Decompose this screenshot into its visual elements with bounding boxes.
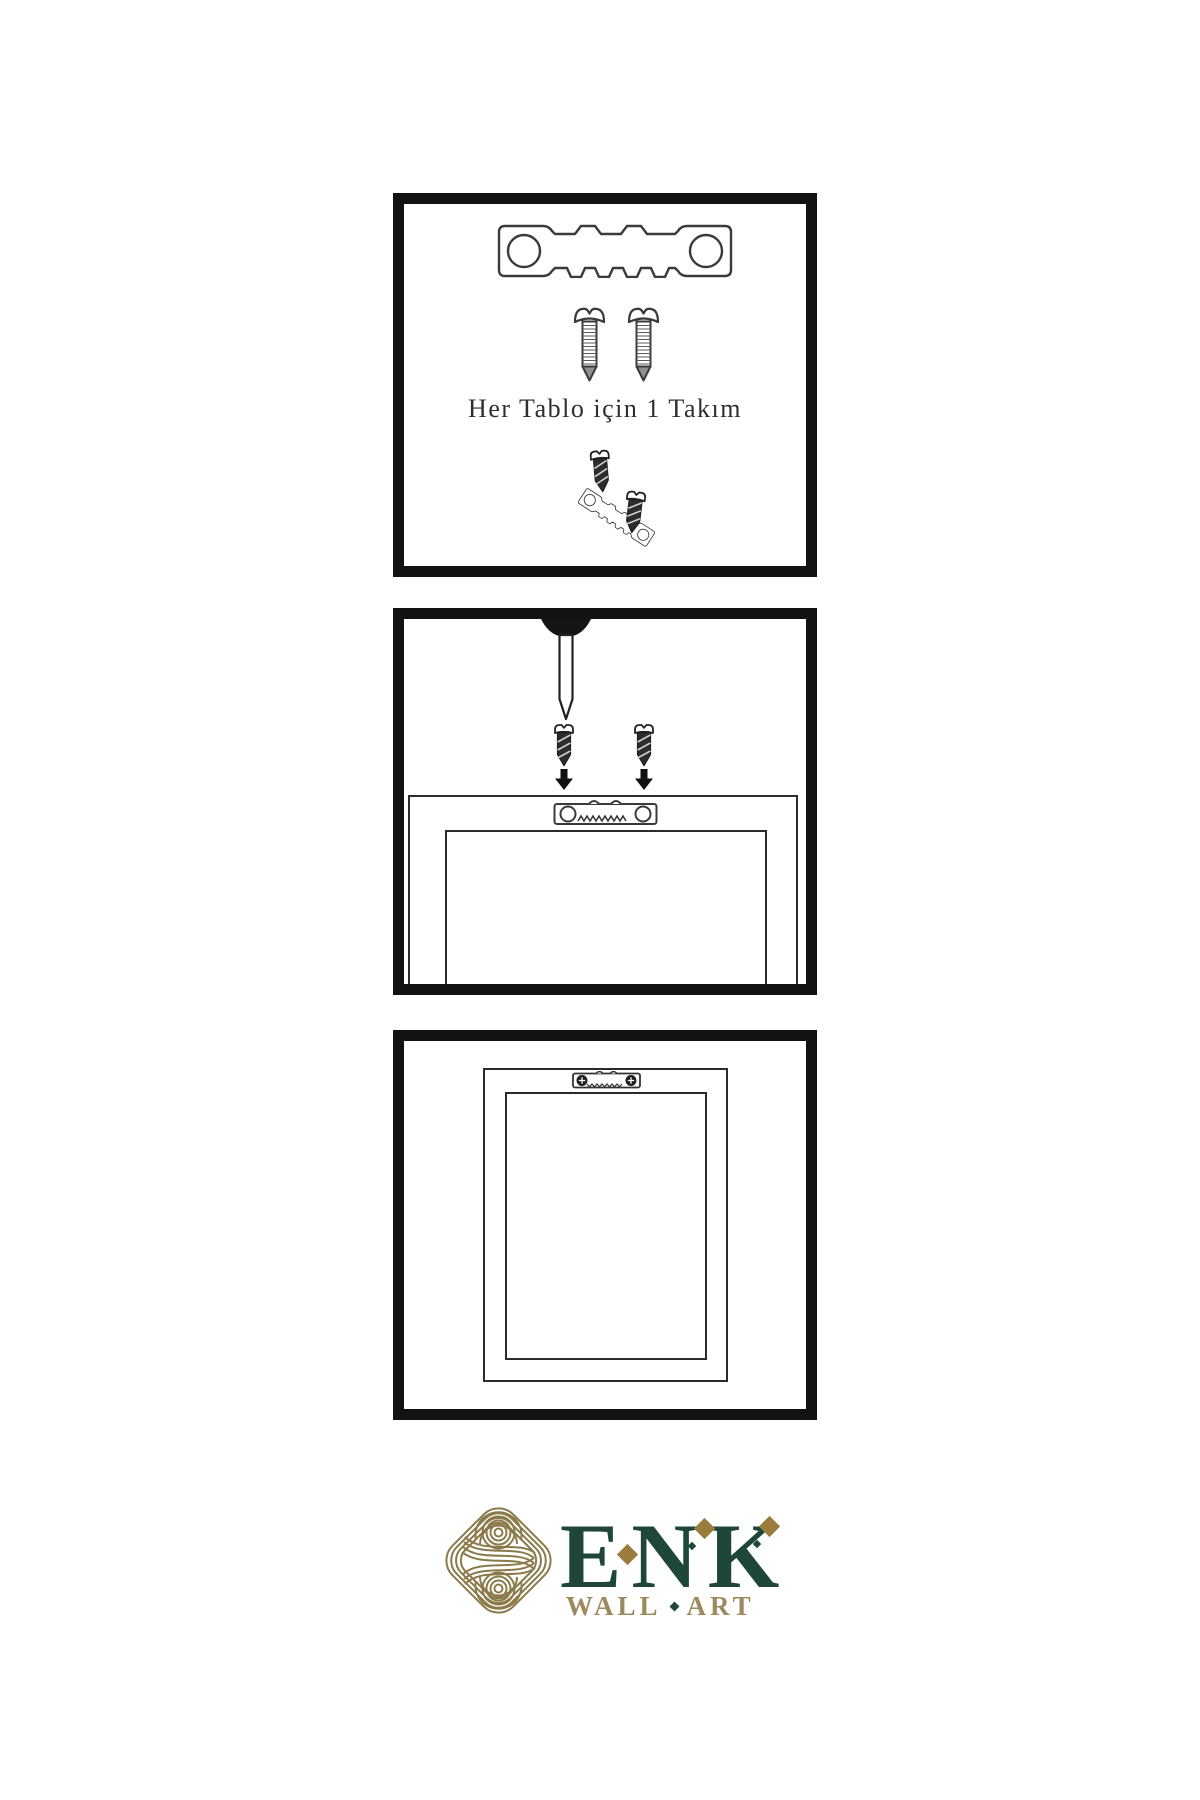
screw-icon bbox=[572, 305, 607, 382]
screw-icon bbox=[554, 723, 574, 767]
brand-tagline: WALL ART bbox=[566, 1592, 755, 1620]
down-arrow-icon bbox=[635, 769, 653, 790]
screw-icon bbox=[634, 723, 654, 767]
picture-frame-inner bbox=[505, 1092, 707, 1360]
sawtooth-hanger-icon bbox=[572, 1071, 641, 1089]
sawtooth-hanger-icon bbox=[553, 800, 658, 826]
panel-installation bbox=[393, 608, 817, 995]
frame-back-inner bbox=[445, 830, 767, 995]
kit-caption: Her Tablo için 1 Takım bbox=[404, 394, 806, 424]
mounting-example-icon bbox=[567, 447, 665, 549]
down-arrow-icon bbox=[555, 769, 573, 790]
panel-hardware-kit: Her Tablo için 1 Takım bbox=[393, 193, 817, 577]
knot-logo-icon bbox=[437, 1499, 560, 1622]
screw-icon bbox=[626, 305, 661, 382]
tagline-word: ART bbox=[687, 1592, 755, 1620]
sawtooth-hanger-icon bbox=[497, 224, 733, 278]
wall-nail-icon bbox=[540, 619, 592, 723]
tagline-word: WALL bbox=[566, 1592, 662, 1620]
diamond-separator-icon bbox=[669, 1601, 679, 1611]
panel-hung-frame bbox=[393, 1030, 817, 1420]
hanging-kit-infographic: Her Tablo için 1 Takım bbox=[0, 0, 1200, 1800]
